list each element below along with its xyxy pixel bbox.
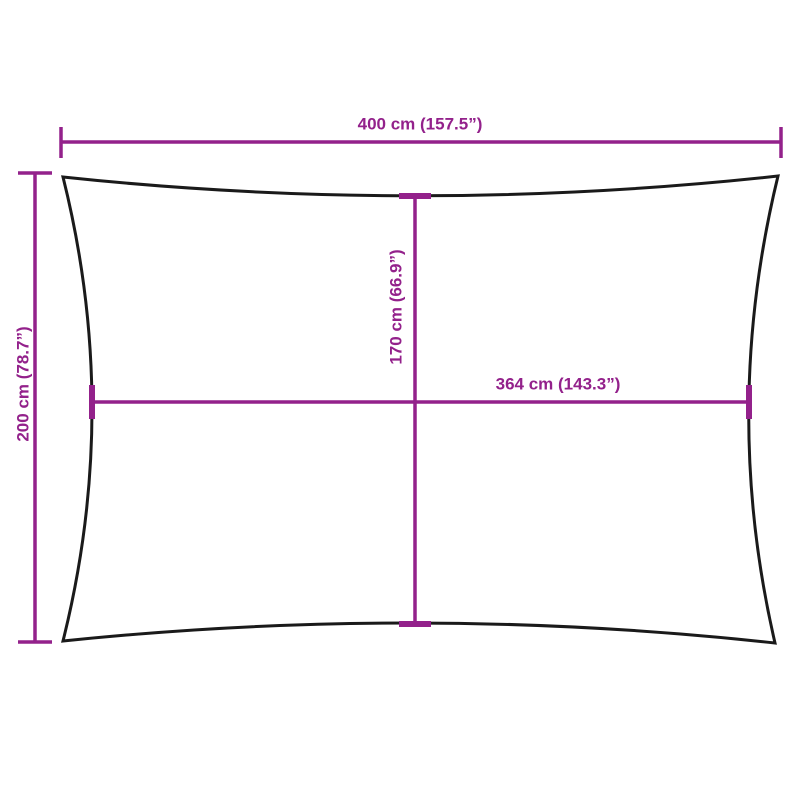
top-dimension-label: 400 cm (157.5”) [358, 116, 483, 133]
product-dimension-diagram: 400 cm (157.5”) 200 cm (78.7”) 170 cm (6… [0, 0, 800, 800]
inner-horizontal-dimension-group [92, 385, 749, 419]
inner-horizontal-dimension-label: 364 cm (143.3”) [496, 376, 621, 393]
left-dimension-label: 200 cm (78.7”) [15, 326, 32, 441]
sail-outline [63, 176, 778, 643]
inner-vertical-dimension-label: 170 cm (66.9”) [388, 249, 405, 364]
